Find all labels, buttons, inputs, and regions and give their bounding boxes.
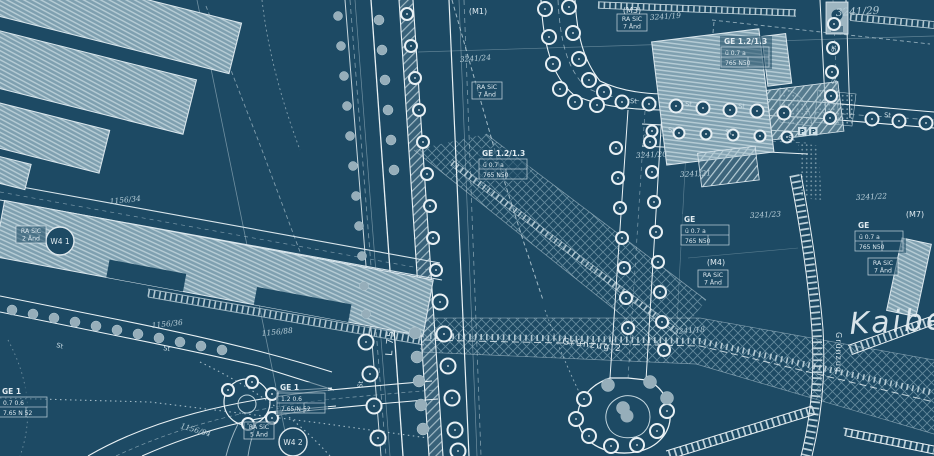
tree-center-dot: [871, 118, 873, 120]
tree-center-dot: [227, 389, 229, 391]
tree-center-dot: [661, 321, 663, 323]
zoning-line3: 765 N50: [859, 244, 885, 251]
zoning-line1: GE 1: [2, 387, 21, 396]
amendment-line2: 5 Änd: [250, 430, 268, 439]
street-marker-label: St: [884, 111, 892, 119]
existing-tree-icon: [349, 162, 358, 171]
street-marker-label: St: [668, 126, 676, 134]
existing-tree-icon: [358, 252, 367, 261]
tree-center-dot: [655, 231, 657, 233]
tree-center-dot: [732, 134, 734, 136]
tree-center-dot: [578, 58, 580, 60]
tree-center-dot: [432, 237, 434, 239]
tree-center-dot: [648, 103, 650, 105]
tree-center-dot: [422, 141, 424, 143]
amendment-line2: 7 Änd: [623, 22, 641, 31]
housing-zone-label: W4 1: [50, 237, 70, 246]
tree-center-dot: [603, 91, 605, 93]
existing-tree-icon: [352, 192, 361, 201]
existing-tree-icon: [217, 345, 227, 355]
existing-tree-icon: [175, 337, 185, 347]
amendment-line1: RA SiC: [249, 424, 269, 431]
zoning-box: GEü 0.7 a765 N50: [854, 220, 906, 253]
tree-center-dot: [833, 23, 835, 25]
street-marker-label: St: [830, 77, 838, 84]
tree-center-dot: [435, 269, 437, 271]
existing-tree-icon: [411, 351, 423, 363]
existing-tree-icon: [28, 309, 38, 319]
existing-tree-icon: [340, 72, 349, 81]
street-marker-label: St: [725, 128, 733, 136]
existing-tree-icon: [661, 392, 674, 405]
existing-tree-icon: [386, 135, 396, 145]
tree-center-dot: [429, 205, 431, 207]
tree-center-dot: [649, 141, 651, 143]
tree-center-dot: [377, 437, 379, 439]
existing-tree-icon: [346, 132, 355, 141]
tree-center-dot: [705, 133, 707, 135]
housing-zone-label: W4 2: [283, 438, 303, 447]
existing-tree-icon: [154, 333, 164, 343]
tree-center-dot: [454, 429, 456, 431]
tree-center-dot: [451, 397, 453, 399]
tree-center-dot: [621, 101, 623, 103]
tree-center-dot: [548, 36, 550, 38]
tree-center-dot: [596, 104, 598, 106]
existing-tree-icon: [644, 376, 657, 389]
tree-center-dot: [588, 79, 590, 81]
zoning-box: GE 1.2/1.3ü 0.7 a765 N50: [478, 148, 530, 181]
tree-center-dot: [925, 122, 927, 124]
parking-label: P: [811, 128, 816, 136]
existing-tree-icon: [602, 379, 615, 392]
street-marker-label: St: [630, 97, 638, 105]
tree-center-dot: [675, 105, 677, 107]
tree-center-dot: [271, 393, 273, 395]
amendment-line1: RA SiC: [21, 228, 41, 235]
zoning-line1: GE 1.2/1.3: [724, 37, 767, 46]
existing-tree-icon: [409, 327, 421, 339]
parking-label: P: [800, 128, 805, 136]
zone-marker-label: (M4): [707, 258, 725, 267]
amendment-line1: RA SiC: [873, 260, 893, 267]
existing-tree-icon: [337, 42, 346, 51]
tree-icon: [451, 444, 466, 456]
tree-center-dot: [251, 381, 253, 383]
tree-center-dot: [583, 398, 585, 400]
existing-tree-icon: [377, 45, 387, 55]
zoning-line1: GE: [684, 215, 695, 224]
tree-center-dot: [447, 365, 449, 367]
tree-center-dot: [610, 445, 612, 447]
tree-center-dot: [627, 327, 629, 329]
zoning-line1: GE: [858, 221, 869, 230]
tree-center-dot: [651, 171, 653, 173]
existing-tree-icon: [380, 75, 390, 85]
street-marker-label: St: [830, 45, 838, 52]
amendment-line2: 7 Änd: [704, 278, 722, 287]
tree-center-dot: [588, 435, 590, 437]
existing-tree-icon: [334, 12, 343, 21]
tree-center-dot: [574, 101, 576, 103]
tree-center-dot: [439, 301, 441, 303]
existing-tree-icon: [389, 165, 399, 175]
zoning-line3: 765 N50: [725, 60, 751, 67]
existing-tree-icon: [417, 423, 429, 435]
zoning-line3: 7.65/N-52: [281, 406, 311, 413]
existing-tree-icon: [70, 317, 80, 327]
tree-center-dot: [656, 430, 658, 432]
tree-center-dot: [369, 373, 371, 375]
zoning-box: GE 10.7 0.67.65 N 52: [0, 386, 50, 419]
tree-center-dot: [617, 177, 619, 179]
parcel-number-label: 3241/21: [680, 168, 712, 179]
tree-center-dot: [666, 410, 668, 412]
amendment-line2: 7 Änd: [478, 90, 496, 99]
tree-center-dot: [625, 297, 627, 299]
existing-tree-icon: [383, 105, 393, 115]
amendment-line1: RA SiC: [477, 84, 497, 91]
zoning-line2: ü 0.7 a: [859, 234, 880, 241]
zoning-line3: 7.65 N 52: [3, 410, 32, 417]
tree-center-dot: [365, 341, 367, 343]
tree-center-dot: [552, 63, 554, 65]
tree-center-dot: [418, 109, 420, 111]
amendment-line2: 2 Änd: [22, 234, 40, 243]
existing-tree-icon: [112, 325, 122, 335]
existing-tree-icon: [374, 15, 384, 25]
existing-tree-icon: [91, 321, 101, 331]
existing-tree-icon: [360, 282, 369, 291]
tree-center-dot: [410, 45, 412, 47]
zoning-line3: 765 N50: [483, 172, 509, 179]
zoning-line1: GE 1: [280, 383, 299, 392]
tree-center-dot: [783, 112, 785, 114]
tree-center-dot: [615, 147, 617, 149]
tree-center-dot: [621, 237, 623, 239]
zoning-box: GE 11.2 0.67.65/N-52: [276, 382, 328, 415]
tree-center-dot: [756, 110, 758, 112]
tree-center-dot: [572, 32, 574, 34]
tree-center-dot: [830, 95, 832, 97]
existing-tree-icon: [49, 313, 59, 323]
existing-tree-icon: [415, 399, 427, 411]
existing-tree-icon: [196, 341, 206, 351]
amendment-line2: 7 Änd: [874, 266, 892, 275]
parcel-number-label: 3241/22: [856, 191, 888, 202]
existing-tree-icon: [133, 329, 143, 339]
tree-center-dot: [829, 117, 831, 119]
tree-center-dot: [729, 109, 731, 111]
tree-center-dot: [898, 120, 900, 122]
tree-center-dot: [623, 267, 625, 269]
tree-center-dot: [831, 71, 833, 73]
tree-center-dot: [759, 135, 761, 137]
amendment-line1: RA SiC: [703, 272, 723, 279]
street-marker-label: St: [738, 102, 746, 110]
tree-center-dot: [457, 450, 459, 452]
tree-center-dot: [678, 132, 680, 134]
tree-center-dot: [663, 349, 665, 351]
parcel-number-label: 3241/29: [836, 5, 881, 19]
place-name-label: Kaiber: [849, 301, 934, 342]
existing-tree-icon: [7, 305, 17, 315]
amendment-line1: RA SiC: [622, 16, 642, 23]
tree-center-dot: [406, 13, 408, 15]
tree-center-dot: [659, 291, 661, 293]
zone-marker-label: (M1): [469, 7, 487, 16]
tree-center-dot: [426, 173, 428, 175]
zoning-line1: GE 1.2/1.3: [482, 149, 525, 158]
zoning-line2: ü 0.7 a: [483, 162, 504, 169]
parcel-number-label: 3241/23: [750, 209, 782, 220]
tree-center-dot: [414, 77, 416, 79]
tree-center-dot: [636, 444, 638, 446]
tree-center-dot: [657, 261, 659, 263]
tree-center-dot: [651, 130, 653, 132]
zoning-line2: 1.2 0.6: [281, 396, 302, 403]
tree-center-dot: [544, 8, 546, 10]
tree-center-dot: [619, 207, 621, 209]
zoning-box: GE 1.2/1.3ü 0.7 a765 N50: [720, 36, 772, 69]
street-marker-label: St: [685, 100, 693, 108]
street-marker-label: St: [788, 134, 796, 142]
tree-center-dot: [702, 107, 704, 109]
teardrop-island: [621, 410, 634, 423]
tree-center-dot: [653, 201, 655, 203]
zoning-line3: 765 N50: [685, 238, 711, 245]
existing-tree-icon: [413, 375, 425, 387]
tree-center-dot: [373, 405, 375, 407]
parcel-number-label: 3241/20: [636, 149, 668, 160]
zoning-box: GEü 0.7 a765 N50: [680, 214, 732, 247]
road-number-label: L 75: [384, 329, 397, 356]
tree-center-dot: [559, 88, 561, 90]
tree-center-dot: [575, 418, 577, 420]
existing-tree-icon: [362, 310, 371, 319]
existing-tree-icon: [355, 222, 364, 231]
zoning-map-canvas[interactable]: (M1)(M3)(M4)(M7)W4 1W4 2RA SiC7 ÄndRA Si…: [0, 0, 934, 456]
tree-center-dot: [271, 417, 273, 419]
zoning-line2: ü 0.7 a: [725, 50, 746, 57]
existing-tree-icon: [343, 102, 352, 111]
tree-center-dot: [568, 6, 570, 8]
green-corridor-vertical-label: Grünzug: [834, 332, 843, 373]
zone-marker-label: (M7): [906, 210, 924, 219]
zoning-line2: 0.7 0.6: [3, 400, 24, 407]
zoning-line2: ü 0.7 a: [685, 228, 706, 235]
tree-center-dot: [443, 333, 445, 335]
